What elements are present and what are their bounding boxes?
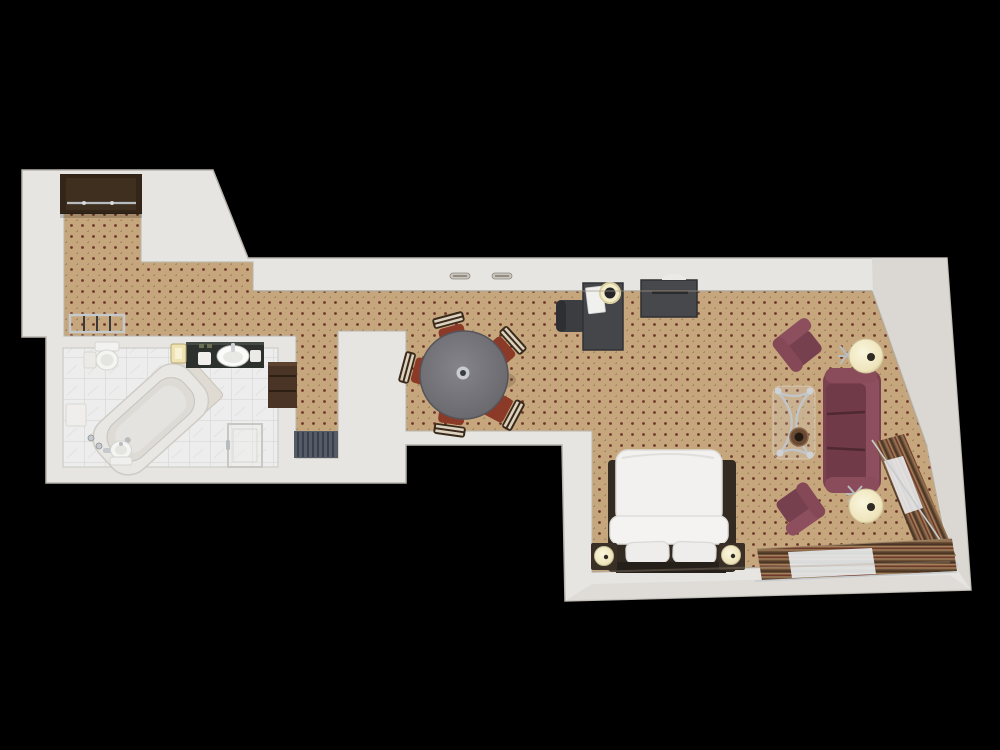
pillow [673, 541, 717, 563]
sheer-curtain [788, 548, 876, 578]
pillow [626, 541, 670, 563]
floorplan-stage [0, 0, 1000, 750]
vanity-wall-lamp [171, 344, 186, 363]
duvet-fold [610, 516, 728, 544]
nightstand-right [719, 543, 745, 570]
floorplan-svg [0, 0, 1000, 750]
glass-coffee-table [773, 386, 815, 459]
vanity-counter [186, 342, 264, 368]
bidet [110, 441, 132, 465]
shower-glass [226, 424, 262, 467]
wall-shelf [268, 362, 297, 408]
dresser [641, 274, 697, 317]
nightstand-left [591, 543, 617, 570]
sofa [823, 368, 881, 493]
desk-lamp [599, 282, 621, 304]
toilet [95, 342, 119, 370]
desk [583, 282, 623, 350]
double-bed [608, 450, 736, 573]
radiator [294, 431, 338, 458]
wardrobe-closet [60, 174, 142, 218]
